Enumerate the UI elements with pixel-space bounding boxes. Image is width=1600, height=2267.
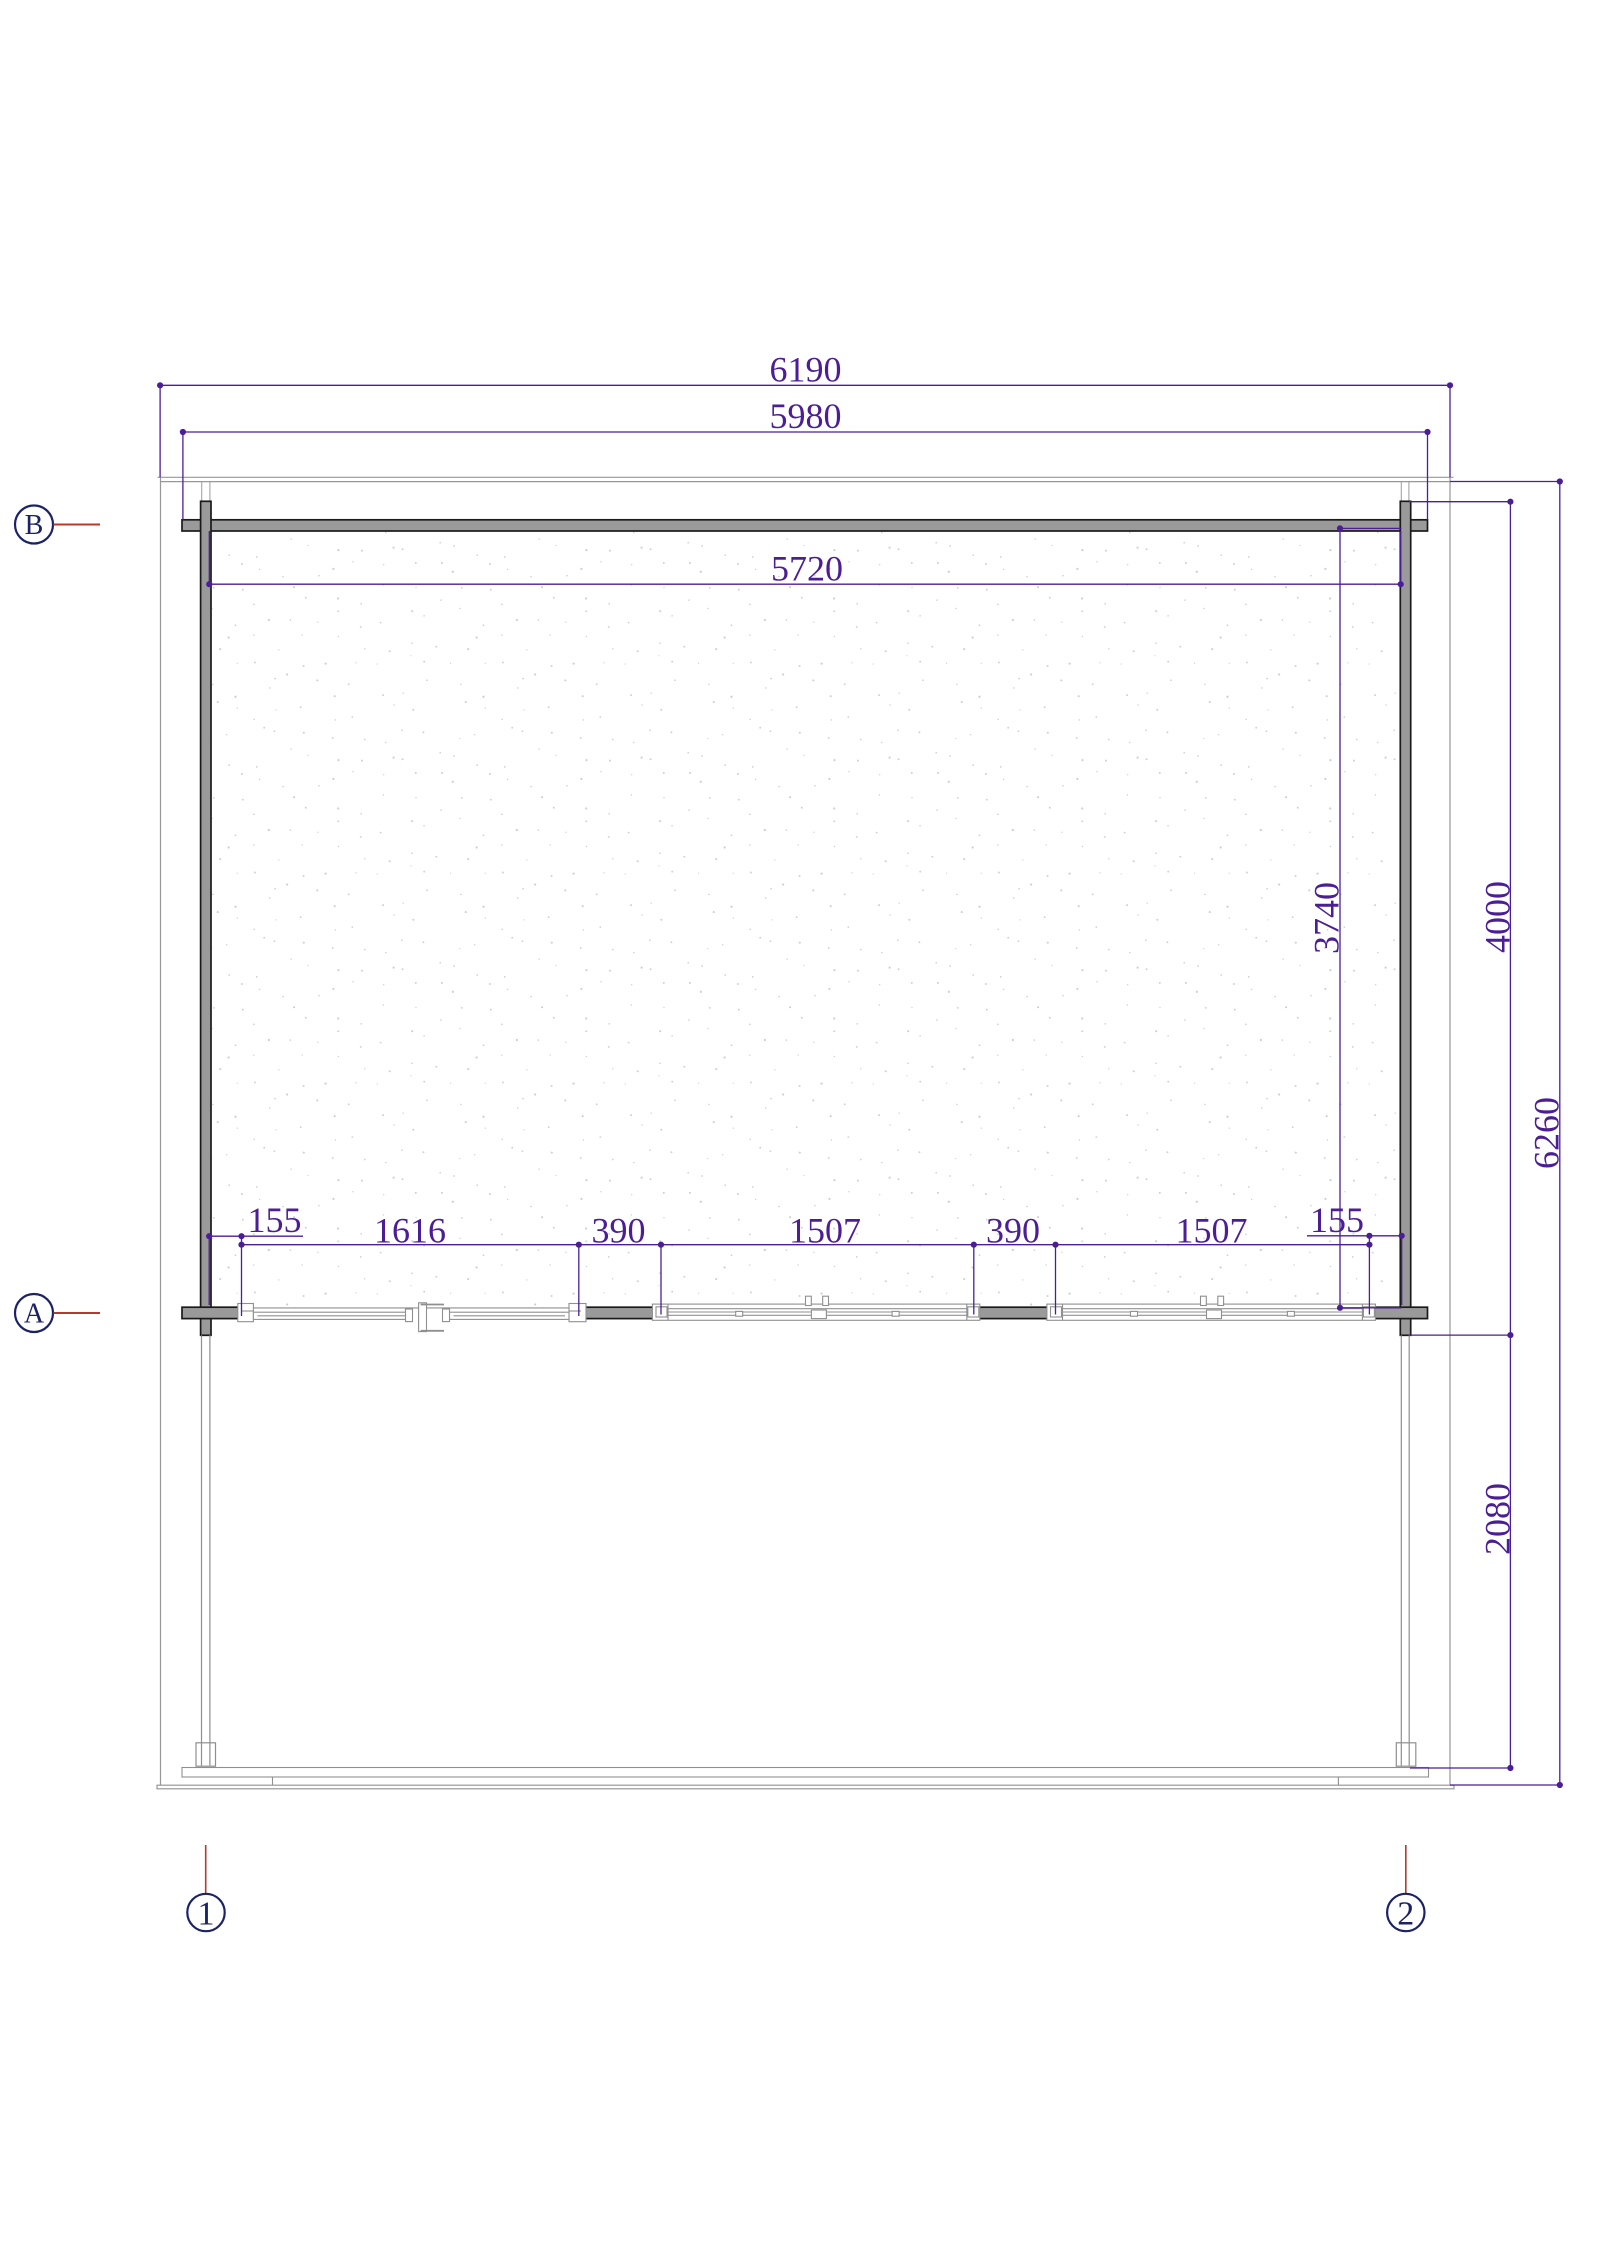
svg-text:155: 155 bbox=[1310, 1200, 1364, 1240]
svg-text:390: 390 bbox=[986, 1211, 1040, 1251]
svg-text:2080: 2080 bbox=[1478, 1483, 1518, 1555]
svg-text:6260: 6260 bbox=[1527, 1097, 1567, 1169]
svg-text:5980: 5980 bbox=[770, 396, 842, 436]
svg-text:1507: 1507 bbox=[1176, 1211, 1248, 1251]
svg-text:1507: 1507 bbox=[789, 1211, 861, 1251]
svg-text:1616: 1616 bbox=[374, 1211, 446, 1251]
svg-text:155: 155 bbox=[248, 1200, 302, 1240]
svg-text:390: 390 bbox=[592, 1211, 646, 1251]
svg-text:A: A bbox=[24, 1299, 45, 1330]
svg-text:2: 2 bbox=[1397, 1895, 1414, 1932]
svg-text:5720: 5720 bbox=[771, 548, 843, 588]
svg-text:6190: 6190 bbox=[770, 349, 842, 389]
svg-text:4000: 4000 bbox=[1478, 881, 1518, 953]
svg-text:B: B bbox=[25, 510, 44, 541]
svg-text:3740: 3740 bbox=[1307, 882, 1347, 954]
svg-text:1: 1 bbox=[198, 1895, 215, 1932]
